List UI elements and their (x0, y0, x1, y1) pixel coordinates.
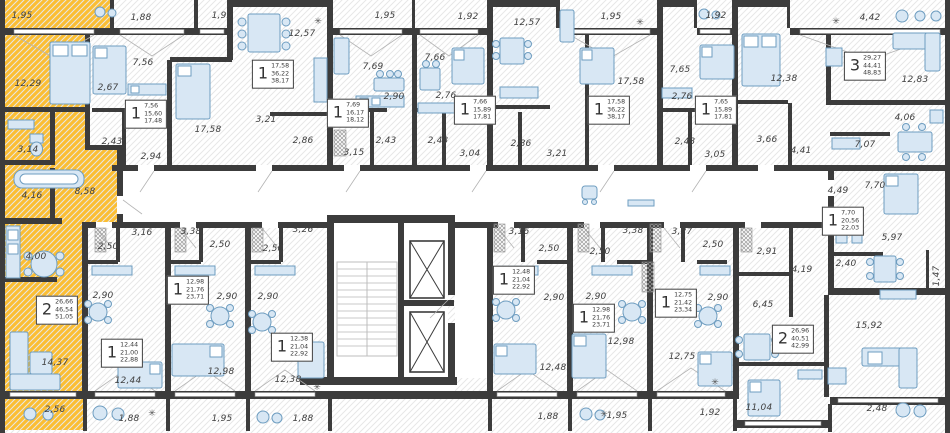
kitchen-counter-icon (314, 58, 327, 102)
bed-icon (172, 344, 224, 376)
area-values: 7,5615,6017,48 (144, 103, 162, 126)
area-value: 22,03 (841, 225, 859, 233)
desk-icon (828, 368, 846, 384)
area-value: 12,44 (120, 342, 138, 350)
kitchen-counter-icon (700, 266, 730, 275)
area-value: 21,76 (592, 314, 610, 322)
sink-icon (8, 120, 34, 129)
rooms-count: 1 (499, 272, 509, 288)
area-value: 7,66 (473, 99, 487, 107)
kitchen-counter-icon (798, 370, 822, 379)
bed-icon (93, 46, 126, 94)
area-values: 29,2744,4148,83 (863, 55, 881, 78)
svg-text:✳: ✳ (636, 18, 644, 28)
bed-icon (580, 48, 614, 84)
bed-icon (884, 174, 918, 214)
area-value: 12,98 (592, 307, 610, 315)
area-value: 7,65 (714, 99, 728, 107)
apartment-badge[interactable]: 226,9640,5142,99 (772, 325, 814, 354)
area-values: 7,6615,8917,81 (473, 99, 491, 122)
area-value: 12,75 (674, 292, 692, 300)
area-values: 12,3821,0422,92 (290, 336, 308, 359)
kitchen-counter-icon (592, 266, 632, 275)
area-values: 12,4821,0422,92 (512, 269, 530, 292)
area-value: 21,42 (674, 299, 692, 307)
bed-icon (176, 64, 210, 119)
area-values: 12,9821,7623,71 (592, 307, 610, 330)
dining-table-icon (619, 301, 646, 324)
area-value: 18,12 (346, 117, 364, 125)
rooms-count: 2 (42, 302, 52, 318)
apartment-badge[interactable]: 112,7521,4223,34 (655, 289, 697, 318)
area-value: 29,27 (863, 55, 881, 63)
area-value: 17,81 (714, 114, 732, 122)
apartment-badge[interactable]: 112,3821,0422,92 (271, 333, 313, 362)
area-value: 23,71 (186, 294, 204, 302)
kitchen-counter-icon (92, 266, 132, 275)
area-value: 26,66 (55, 299, 73, 307)
area-value: 21,04 (512, 276, 530, 284)
balcony-chairs-icon (896, 10, 941, 22)
rooms-count: 1 (107, 345, 117, 361)
apartment-badge[interactable]: 17,6615,8917,81 (454, 96, 496, 125)
kitchen-counter-icon (128, 84, 166, 95)
kitchen-counter-icon (175, 266, 215, 275)
bed-icon (742, 34, 780, 86)
area-value: 21,00 (120, 349, 138, 357)
bed-icon (748, 380, 780, 416)
rooms-count: 1 (828, 213, 838, 229)
area-value: 17,58 (607, 99, 625, 107)
area-value: 22,92 (290, 351, 308, 359)
bed-icon (700, 45, 734, 79)
area-value: 15,89 (714, 106, 732, 114)
sofa-icon (334, 38, 349, 74)
dining-table-icon (249, 311, 276, 334)
area-value: 20,56 (841, 217, 859, 225)
area-value: 46,54 (55, 306, 73, 314)
area-value: 7,69 (346, 102, 360, 110)
kitchen-counter-icon (6, 226, 20, 278)
kitchen-counter-icon (662, 88, 692, 98)
area-value: 12,38 (290, 336, 308, 344)
area-values: 12,9821,7623,71 (186, 279, 204, 302)
area-value: 26,96 (791, 328, 809, 336)
svg-text:✳: ✳ (314, 17, 322, 27)
rooms-count: 2 (778, 331, 788, 347)
svg-text:✳: ✳ (711, 378, 719, 388)
area-value: 15,60 (144, 110, 162, 118)
rooms-count: 1 (594, 102, 604, 118)
apartment-badge[interactable]: 112,4821,0422,92 (493, 266, 535, 295)
sofa-icon (560, 10, 574, 42)
dining-table-icon (85, 301, 112, 324)
area-value: 22,92 (512, 284, 530, 292)
area-value: 48,83 (863, 70, 881, 78)
svg-text:✳: ✳ (148, 409, 156, 419)
area-values: 7,7020,5622,03 (841, 210, 859, 233)
svg-text:✳: ✳ (313, 383, 321, 393)
selected-apartment-badge[interactable]: 226,6646,5451,05 (36, 296, 78, 325)
area-value: 15,89 (473, 106, 491, 114)
dining-table-icon (493, 299, 520, 322)
area-value: 42,99 (791, 343, 809, 351)
kitchen-counter-icon (832, 138, 860, 149)
dining-table-icon (207, 305, 234, 328)
kitchen-counter-icon (255, 266, 295, 275)
dining-table-icon (695, 305, 722, 328)
kitchen-counter-icon (500, 87, 538, 98)
apartment-badge[interactable]: 112,4421,0022,88 (101, 339, 143, 368)
rooms-count: 1 (701, 102, 711, 118)
area-values: 17,5836,2238,17 (271, 63, 289, 86)
apartment-badge[interactable]: 112,9821,7623,71 (573, 304, 615, 333)
rooms-count: 1 (258, 66, 268, 82)
desk-icon (826, 48, 842, 66)
apartment-badge[interactable]: 117,5836,2238,17 (588, 96, 630, 125)
area-value: 38,17 (271, 78, 289, 86)
bed-icon (50, 42, 90, 104)
area-value: 44,41 (863, 62, 881, 70)
area-value: 17,48 (144, 118, 162, 126)
area-value: 21,04 (290, 343, 308, 351)
toilet-icon (30, 134, 43, 156)
area-value: 17,81 (473, 114, 491, 122)
apartment-badge[interactable]: 17,5615,6017,48 (125, 100, 167, 129)
apartment-badge[interactable]: 329,2744,4148,83 (844, 52, 886, 81)
area-values: 7,6515,8917,81 (714, 99, 732, 122)
apartment-badge[interactable]: 117,5836,2238,17 (252, 60, 294, 89)
area-value: 17,58 (271, 63, 289, 71)
rooms-count: 1 (131, 106, 141, 122)
kitchen-counter-icon (880, 290, 916, 299)
area-values: 26,9640,5142,99 (791, 328, 809, 351)
rooms-count: 1 (277, 339, 287, 355)
floor-plan: ✳✳✳ ✳✳✳ ✳ 1,951,881,951,951,921,951,924,… (0, 0, 950, 433)
bed-icon (572, 334, 606, 378)
area-values: 7,6916,1718,12 (346, 102, 364, 125)
area-value: 40,51 (791, 335, 809, 343)
apartment-badge[interactable]: 112,9821,7623,71 (167, 276, 209, 305)
area-value: 22,88 (120, 357, 138, 365)
rooms-count: 1 (460, 102, 470, 118)
svg-text:✳: ✳ (600, 410, 608, 420)
dining-table-icon (238, 14, 290, 52)
area-value: 36,22 (271, 70, 289, 78)
svg-text:✳: ✳ (832, 17, 840, 27)
area-values: 12,4421,0022,88 (120, 342, 138, 365)
area-value: 51,05 (55, 314, 73, 322)
area-values: 12,7521,4223,34 (674, 292, 692, 315)
rooms-count: 1 (173, 282, 183, 298)
staircase (337, 262, 397, 356)
area-values: 17,5836,2238,17 (607, 99, 625, 122)
area-value: 7,56 (144, 103, 158, 111)
bed-icon (494, 344, 536, 374)
area-value: 38,17 (607, 114, 625, 122)
dining-table-icon (374, 71, 404, 92)
rooms-count: 1 (579, 310, 589, 326)
area-values: 26,6646,5451,05 (55, 299, 73, 322)
area-value: 12,98 (186, 279, 204, 287)
floor-plan-drawing: ✳✳✳ ✳✳✳ ✳ (0, 0, 950, 433)
area-value: 12,48 (512, 269, 530, 277)
area-value: 7,70 (841, 210, 855, 218)
area-value: 21,76 (186, 286, 204, 294)
rooms-count: 1 (661, 295, 671, 311)
apartment-badge[interactable]: 17,6916,1718,12 (327, 99, 369, 128)
shoe-rack-icon (628, 200, 654, 206)
apartment-badge[interactable]: 17,6515,8917,81 (695, 96, 737, 125)
apartment-badge[interactable]: 17,7020,5622,03 (822, 207, 864, 236)
rooms-count: 1 (333, 105, 343, 121)
area-value: 16,17 (346, 109, 364, 117)
bathtub-icon (14, 170, 84, 188)
area-value: 36,22 (607, 106, 625, 114)
bed-icon (452, 48, 484, 84)
area-value: 23,34 (674, 307, 692, 315)
washer-icon (930, 110, 943, 123)
area-value: 23,71 (592, 322, 610, 330)
rooms-count: 3 (850, 58, 860, 74)
